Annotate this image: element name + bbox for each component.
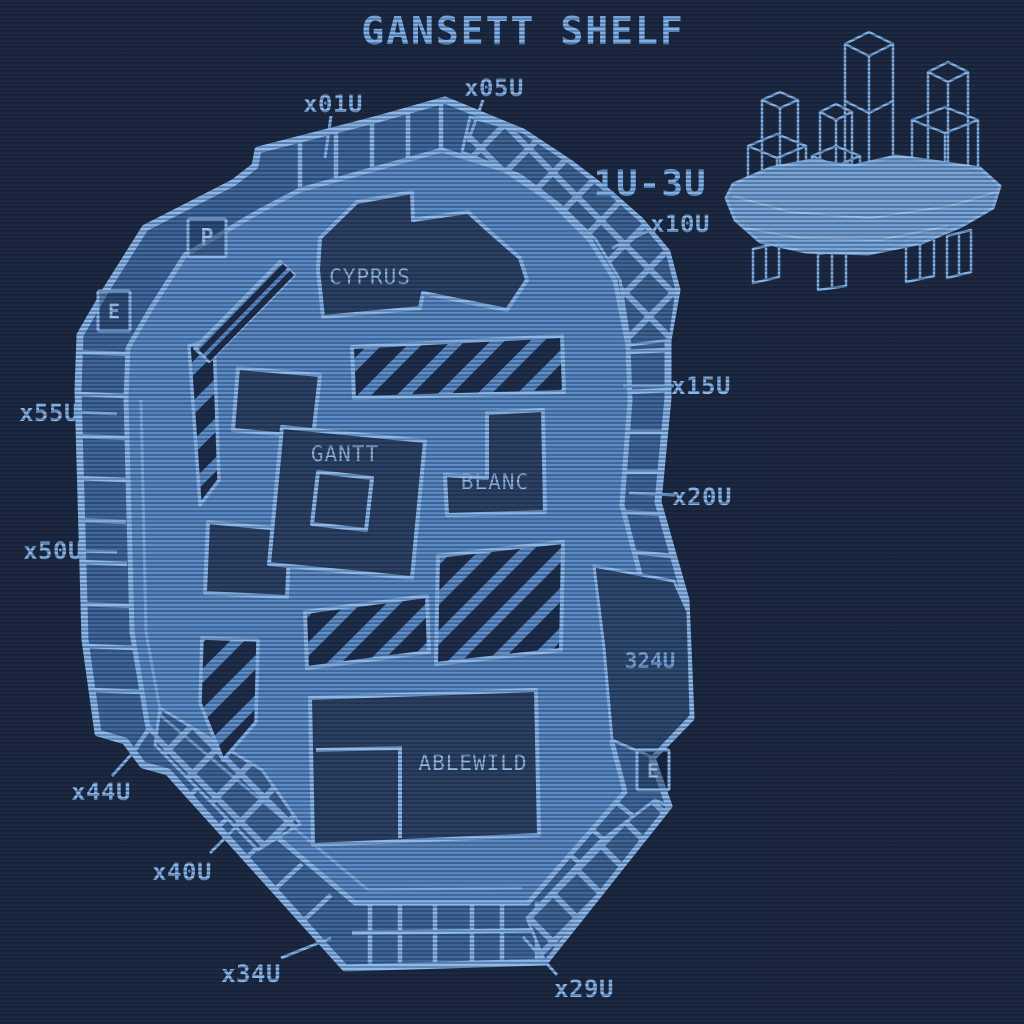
berth-label-x10u: x10U: [650, 210, 710, 238]
berth-label-x01u: x01U: [303, 90, 363, 118]
zone-label-ablewild: ABLEWILD: [418, 751, 527, 775]
exit-marker-lower: E: [636, 749, 671, 792]
page-title: GANSETT SHELF: [361, 9, 684, 53]
exit-marker-upper-letter: E: [108, 301, 120, 321]
berth-label-x29u: x29U: [554, 975, 614, 1003]
berth-label-x40u: x40U: [152, 858, 212, 886]
parking-marker: P: [187, 218, 228, 259]
berth-label-x20u: x20U: [672, 483, 732, 511]
berth-label-x50u: x50U: [23, 537, 83, 565]
gansett-shelf-map-screen: GANSETT SHELF 1U-3U x01U x05U x10U x15U …: [0, 0, 1024, 1024]
shelf-plan: [76, 100, 691, 975]
iso-inset-illustration: [726, 32, 1000, 290]
small-block-a: [233, 368, 320, 437]
exit-marker-upper: E: [97, 290, 132, 333]
zone-label-cyprus: CYPRUS: [329, 265, 411, 289]
zone-label-324u: 324U: [625, 649, 676, 673]
berth-label-x05u: x05U: [464, 74, 524, 102]
berth-label-x55u: x55U: [19, 399, 79, 427]
berth-range-label: 1U-3U: [593, 164, 706, 205]
parking-marker-letter: P: [200, 227, 213, 249]
berth-label-x34u: x34U: [221, 960, 281, 988]
berth-label-x44u: x44U: [71, 778, 131, 806]
berth-label-x15u: x15U: [671, 372, 731, 400]
exit-marker-lower-letter: E: [647, 760, 659, 780]
zone-label-blanc: BLANC: [461, 470, 529, 494]
zone-label-gantt: GANTT: [311, 442, 379, 466]
